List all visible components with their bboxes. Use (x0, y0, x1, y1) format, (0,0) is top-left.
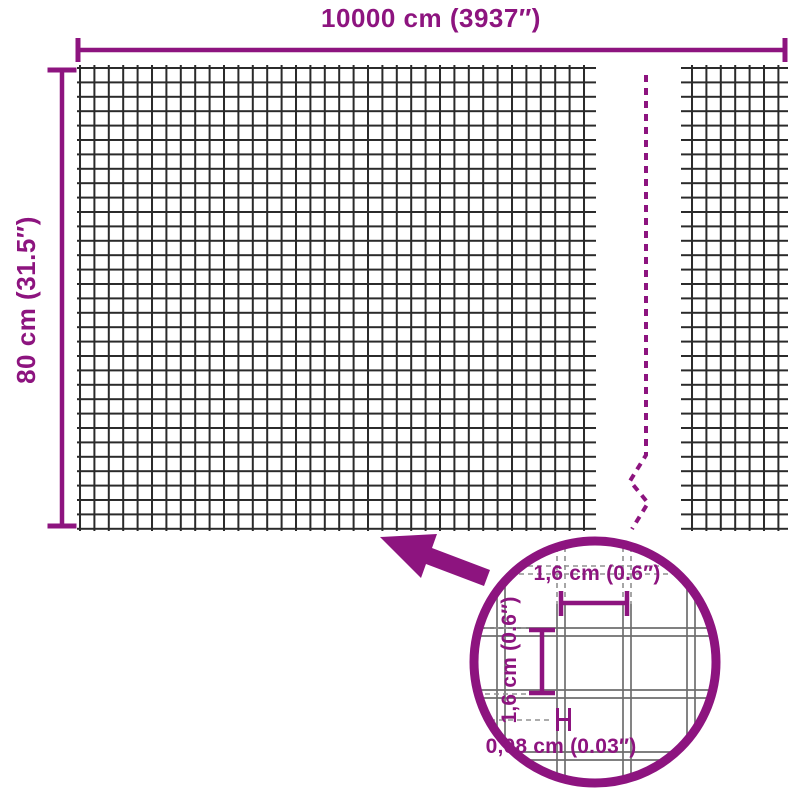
mesh-panel-left (77, 65, 596, 531)
width-dimension-label: 10000 cm (3937″) (321, 3, 541, 33)
opening-height-label: 1,6 cm (0.6″) (498, 596, 521, 723)
product-dimension-diagram: 10000 cm (3937″) 80 cm (31.5″) (0, 0, 800, 800)
lens-dimensions (529, 591, 627, 731)
height-dimension-label: 80 cm (31.5″) (11, 216, 41, 384)
width-dimension: 10000 cm (3937″) (78, 3, 785, 62)
zoom-arrow-icon (380, 534, 490, 586)
break-line (630, 75, 648, 529)
diagram-svg: 10000 cm (3937″) 80 cm (31.5″) (0, 0, 800, 800)
wire-thickness-marker (558, 708, 570, 731)
height-dimension: 80 cm (31.5″) (11, 70, 77, 526)
opening-width-label: 1,6 cm (0.6″) (533, 562, 660, 585)
wire-thickness-label: 0,08 cm (0.03″) (486, 735, 637, 758)
mesh-panel-right (681, 65, 788, 531)
